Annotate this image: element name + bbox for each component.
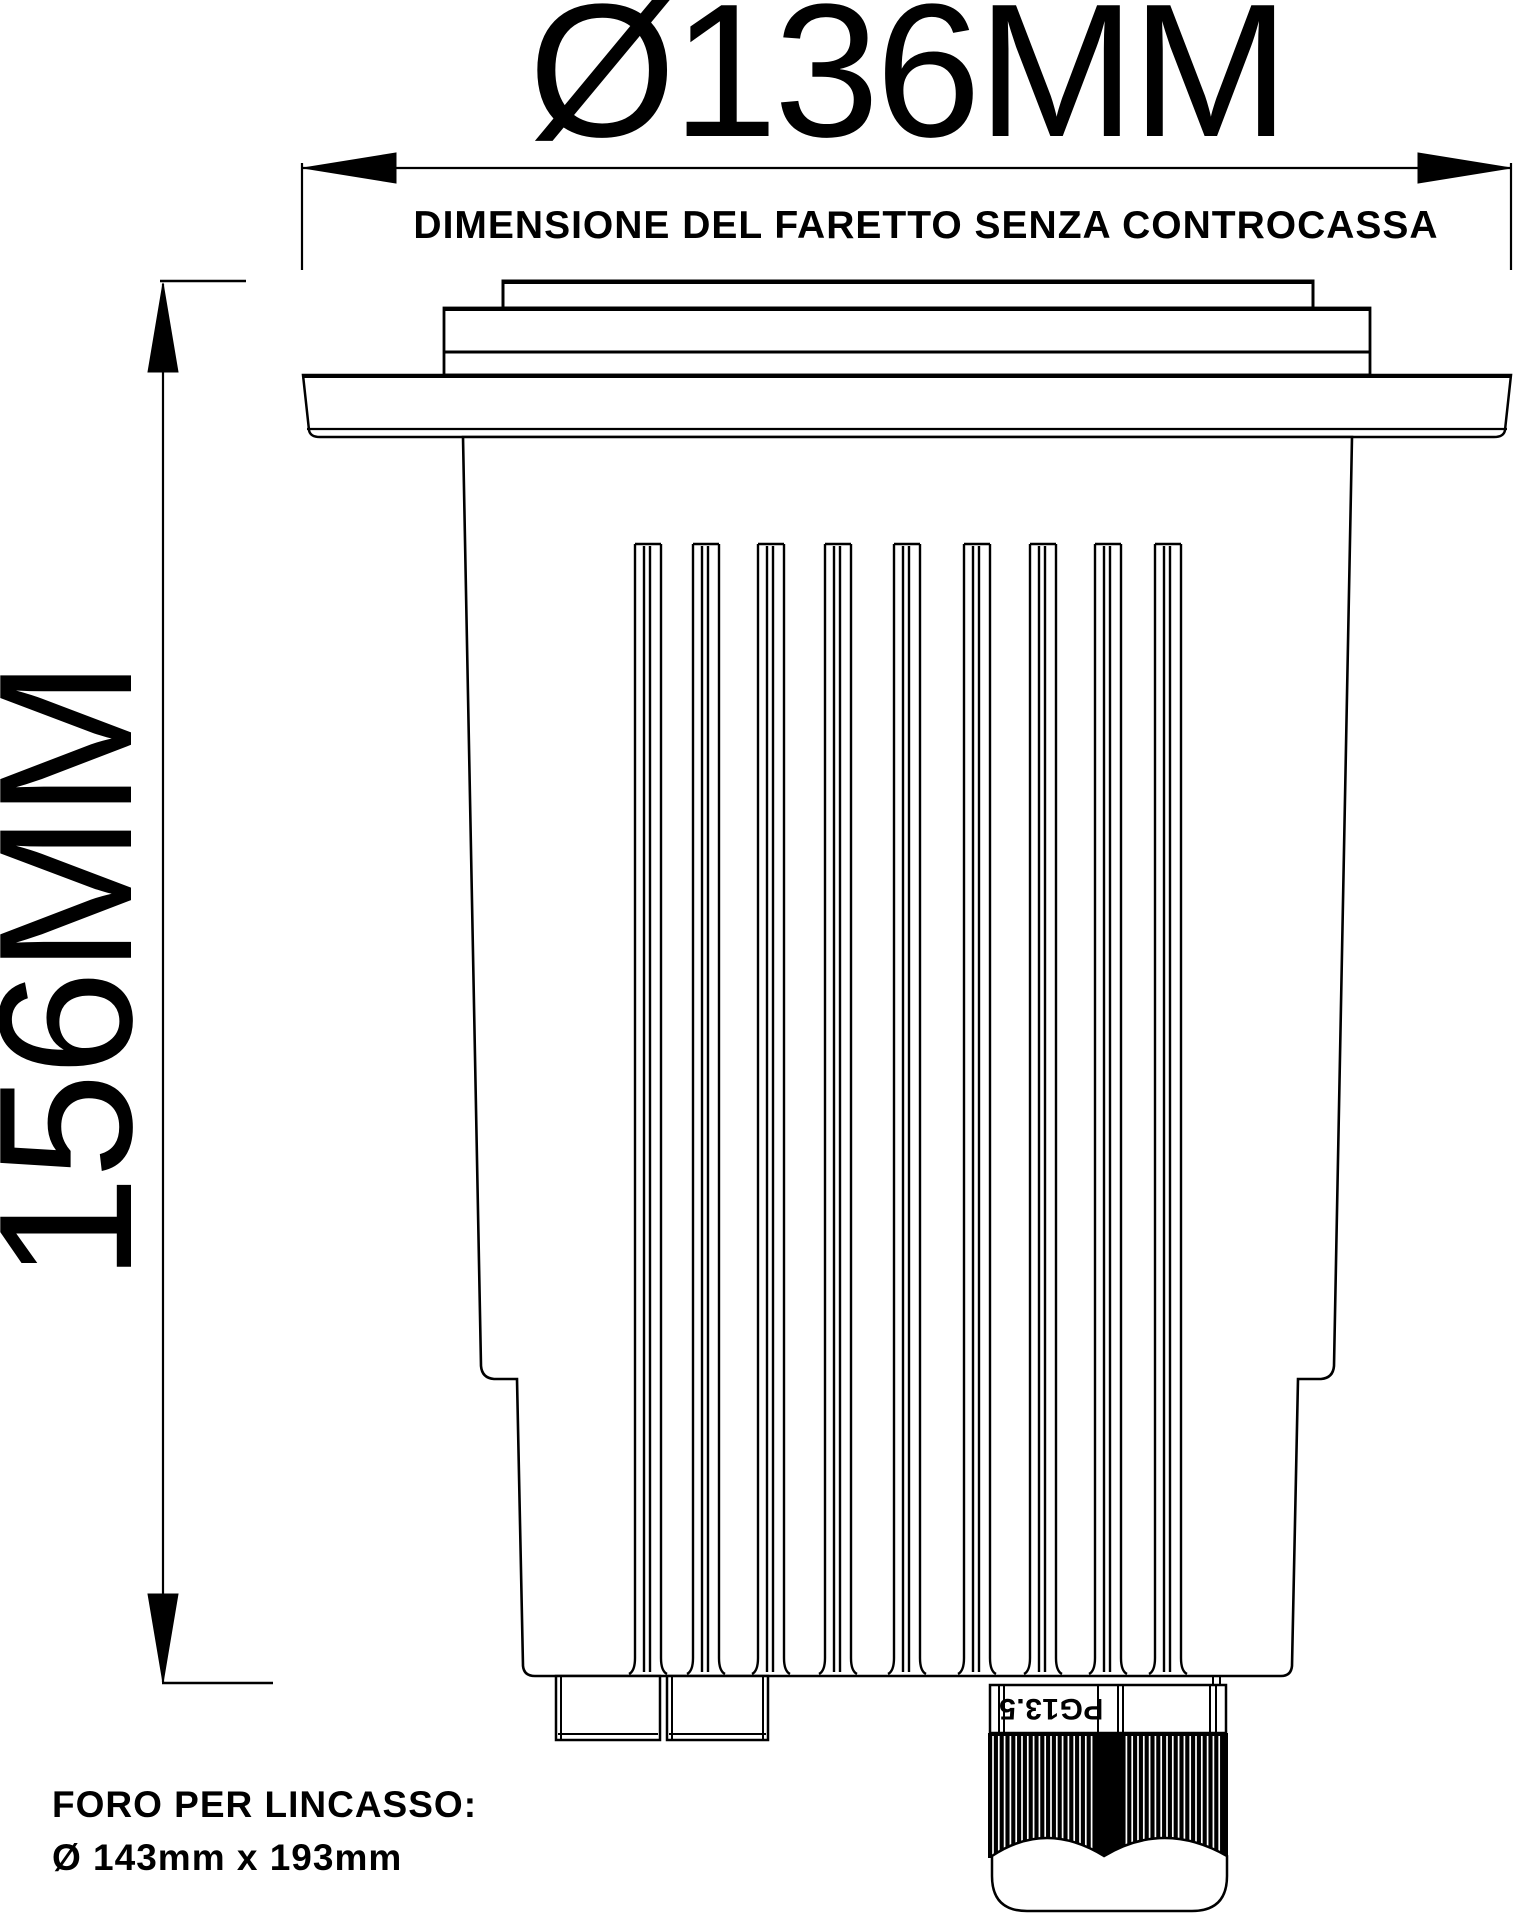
recess-hole-note: FORO PER LINCASSO: Ø 143mm x 193mm [52, 1778, 477, 1884]
arrowhead-right [1418, 153, 1511, 183]
mounting-tabs [556, 1676, 768, 1740]
luminaire-line-drawing [0, 0, 1518, 1920]
height-dimension-text: 156MM [0, 663, 161, 1282]
top-bezel-ring [503, 281, 1313, 308]
technical-drawing-page: Ø136MM DIMENSIONE DEL FARETTO SENZA CONT… [0, 0, 1518, 1920]
arrowhead-down [148, 1594, 178, 1683]
tab-right [667, 1676, 768, 1740]
recess-note-size: Ø 143mm x 193mm [52, 1831, 477, 1884]
second-ring [444, 308, 1370, 375]
diameter-caption-text: DIMENSIONE DEL FARETTO SENZA CONTROCASSA [413, 204, 1438, 248]
gland-knurl [988, 1733, 1228, 1858]
gland-marking-text: PG13.5 [999, 1691, 1104, 1725]
flange [303, 375, 1511, 437]
arrowhead-up [148, 283, 178, 372]
recess-note-title: FORO PER LINCASSO: [52, 1778, 477, 1831]
diameter-dimension-text: Ø136MM [528, 0, 1285, 166]
trim-rings [444, 281, 1370, 375]
arrowhead-left [303, 153, 396, 183]
tab-left [556, 1676, 660, 1740]
housing-body [463, 437, 1352, 1676]
